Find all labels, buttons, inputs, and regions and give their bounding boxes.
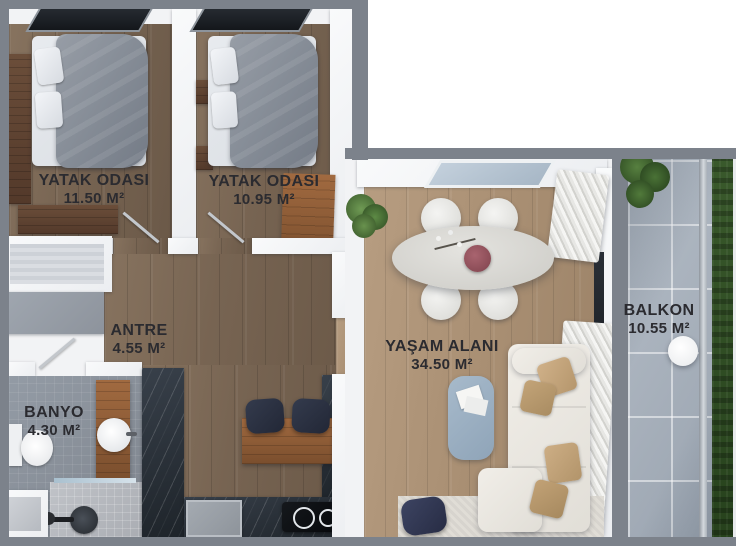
- room-name: YAŞAM ALANI: [385, 338, 498, 356]
- bedroom-1-wardrobe: [9, 54, 31, 204]
- bedroom-2-pillow: [211, 91, 238, 129]
- sofa-pillow: [519, 379, 557, 417]
- room-label-yatak-odasi-1: YATAK ODASI 11.50 M²: [39, 172, 150, 208]
- room-area: 4.30 M²: [24, 422, 84, 440]
- room-label-banyo: BANYO 4.30 M²: [24, 404, 84, 440]
- grass-strip: [712, 148, 733, 546]
- hall-dresser: [2, 292, 104, 334]
- room-area: 4.55 M²: [110, 340, 167, 358]
- room-name: YATAK ODASI: [39, 172, 150, 190]
- bathroom-faucet: [126, 432, 137, 436]
- bedroom-divider-wall: [172, 9, 196, 240]
- bedroom-1-dresser: [18, 205, 118, 234]
- border-living-top: [345, 148, 736, 159]
- sofa-pillow: [544, 442, 583, 484]
- room-label-yasam-alani: YAŞAM ALANI 34.50 M²: [385, 338, 498, 374]
- room-area: 10.95 M²: [209, 191, 320, 209]
- balcony-railing: [699, 159, 707, 546]
- cooktop-burner: [293, 507, 315, 529]
- hall-closet-doors: [10, 244, 104, 284]
- room-area: 34.50 M²: [385, 356, 498, 374]
- border-bedroom2-right: [352, 0, 368, 160]
- bedroom-1-pillow: [34, 46, 65, 85]
- plant: [352, 214, 376, 238]
- bathroom-top-wall: [86, 362, 142, 376]
- room-area: 10.55 M²: [624, 320, 695, 338]
- bedroom-1-pillow: [35, 91, 63, 129]
- room-label-antre: ANTRE 4.55 M²: [110, 322, 167, 358]
- room-label-balkon: BALKON 10.55 M²: [624, 302, 695, 338]
- flower-blossom: [436, 236, 441, 241]
- room-label-yatak-odasi-2: YATAK ODASI 10.95 M²: [209, 173, 320, 209]
- shower-floor: [50, 482, 142, 537]
- table-vase: [464, 245, 491, 272]
- bedroom-2-duvet: [230, 34, 318, 168]
- room-area: 11.50 M²: [39, 190, 150, 208]
- balcony-lamp: [668, 336, 698, 366]
- room-name: YATAK ODASI: [209, 173, 320, 191]
- bar-stool: [245, 398, 285, 435]
- service-shaft-inner: [9, 497, 41, 531]
- floor-ottoman: [400, 495, 449, 537]
- floor-plan: YATAK ODASI 11.50 M² YATAK ODASI 10.95 M…: [0, 0, 736, 546]
- bathroom-top-wall: [9, 362, 35, 376]
- living-skylight-window: [424, 160, 556, 188]
- shower-glass: [54, 478, 136, 483]
- kitchen-appliance: [186, 500, 242, 537]
- flower-blossom: [448, 230, 453, 235]
- room-name: ANTRE: [110, 322, 167, 340]
- bedroom-1-duvet: [56, 34, 148, 168]
- shower-drain: [70, 506, 98, 534]
- balcony-shrub: [626, 180, 654, 208]
- balcony-left-wall: [612, 148, 628, 546]
- bedroom-bottom-wall: [168, 238, 198, 254]
- border-top: [0, 0, 368, 9]
- bedroom-2-pillow: [210, 47, 239, 86]
- kitchen-counter-left: [142, 368, 184, 537]
- room-name: BALKON: [624, 302, 695, 320]
- border-bottom: [0, 537, 736, 546]
- bar-stool: [291, 398, 331, 434]
- toilet-tank: [9, 424, 22, 466]
- room-name: BANYO: [24, 404, 84, 422]
- flower-blossom: [457, 242, 462, 247]
- border-left: [0, 0, 9, 546]
- curtain: [547, 169, 609, 263]
